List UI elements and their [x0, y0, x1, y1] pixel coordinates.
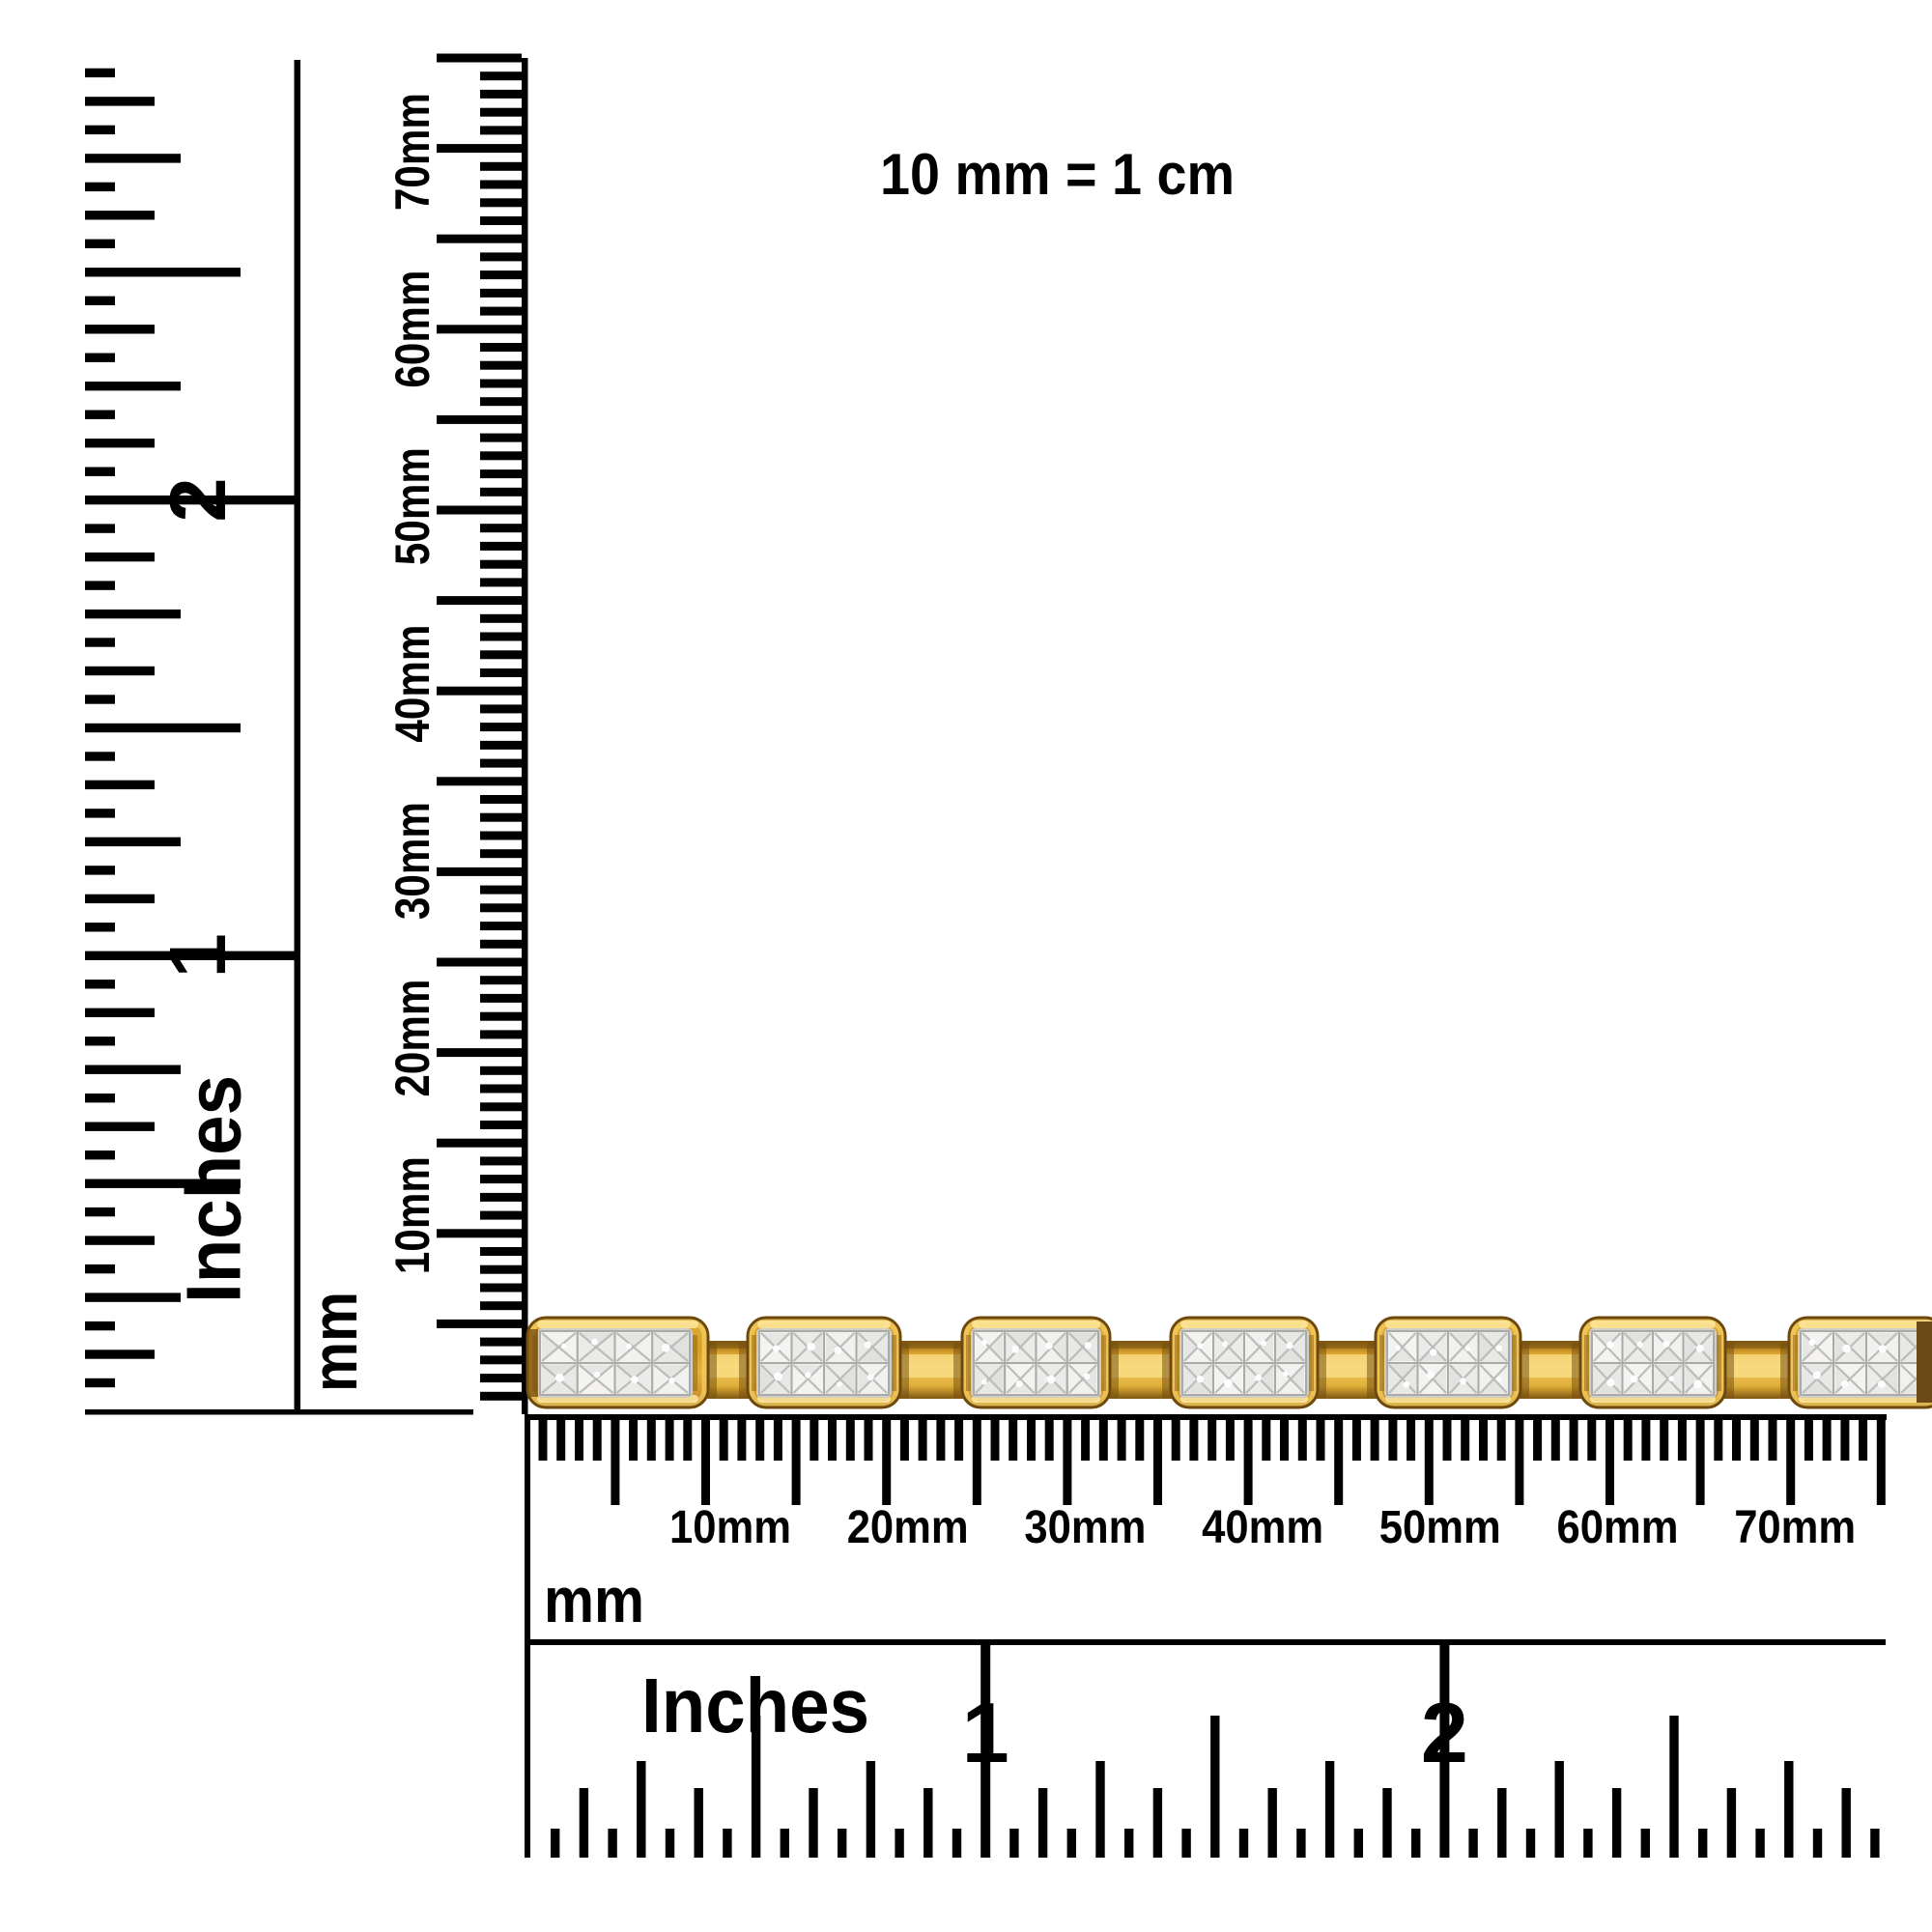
svg-text:10 mm = 1 cm: 10 mm = 1 cm: [880, 142, 1235, 207]
svg-text:1: 1: [962, 1685, 1009, 1780]
svg-text:60mm: 60mm: [385, 270, 440, 388]
svg-text:70mm: 70mm: [385, 93, 440, 211]
svg-text:20mm: 20mm: [847, 1502, 969, 1553]
svg-text:2: 2: [1421, 1685, 1468, 1780]
svg-text:10mm: 10mm: [669, 1502, 791, 1553]
svg-text:Inches: Inches: [641, 1662, 869, 1748]
svg-text:50mm: 50mm: [1379, 1502, 1501, 1553]
svg-text:70mm: 70mm: [1734, 1502, 1856, 1553]
svg-text:20mm: 20mm: [385, 980, 440, 1097]
svg-text:2: 2: [153, 478, 242, 523]
svg-text:40mm: 40mm: [385, 625, 440, 743]
svg-text:50mm: 50mm: [385, 447, 440, 565]
svg-text:60mm: 60mm: [1557, 1502, 1679, 1553]
svg-text:mm: mm: [544, 1564, 644, 1635]
svg-text:10mm: 10mm: [385, 1156, 440, 1274]
svg-text:30mm: 30mm: [1024, 1502, 1146, 1553]
svg-text:Inches: Inches: [171, 1075, 257, 1303]
svg-text:mm: mm: [298, 1292, 370, 1392]
svg-text:40mm: 40mm: [1202, 1502, 1323, 1553]
svg-text:1: 1: [153, 933, 242, 978]
svg-text:30mm: 30mm: [385, 802, 440, 920]
